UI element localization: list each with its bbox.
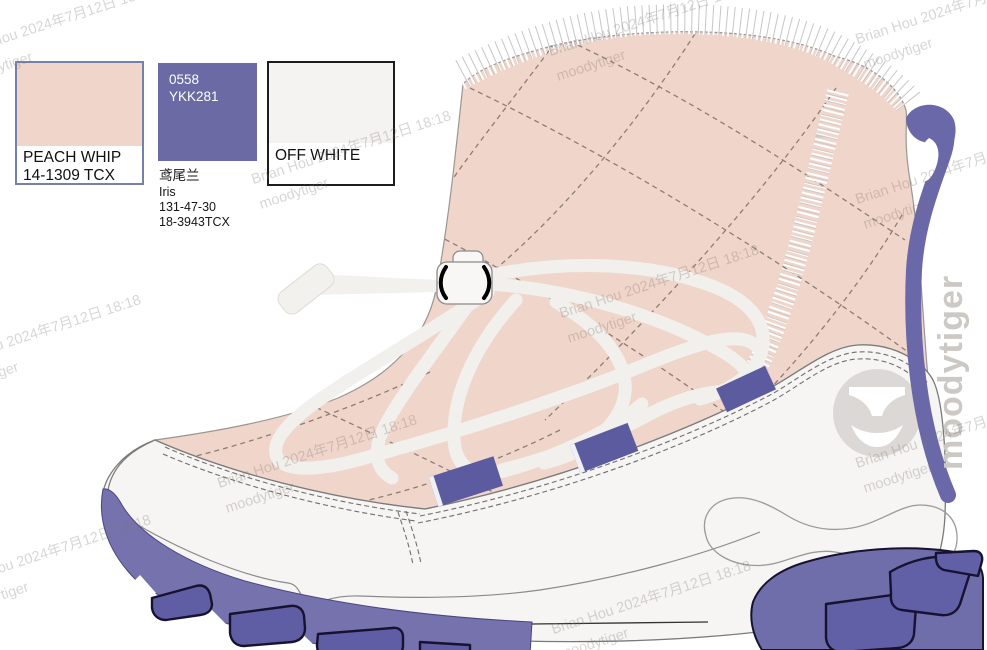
swatch-off-white-fill xyxy=(269,63,393,143)
lace-pull-handle xyxy=(274,260,438,317)
swatch-peach-fill xyxy=(17,63,142,146)
moodytiger-logo-icon xyxy=(833,369,921,457)
swatch-iris-en-name: Iris xyxy=(159,185,230,200)
swatch-peach-code: 14-1309 TCX xyxy=(23,167,136,185)
swatch-peach-name: PEACH WHIP xyxy=(23,149,136,167)
swatch-iris-info: 鸢尾兰 Iris 131-47-30 18-3943TCX xyxy=(159,168,230,230)
swatch-iris-code-a: 131-47-30 xyxy=(159,200,230,215)
swatch-off-white-name: OFF WHITE xyxy=(269,143,393,165)
design-sheet: PEACH WHIP 14-1309 TCX 0558 YKK281 鸢尾兰 I… xyxy=(0,0,987,650)
boot-illustration xyxy=(0,0,987,650)
swatch-iris-zip-code: YKK281 xyxy=(169,88,257,105)
swatch-iris-code-b: 18-3943TCX xyxy=(159,215,230,230)
swatch-iris-cn-name: 鸢尾兰 xyxy=(159,168,230,183)
swatch-off-white: OFF WHITE xyxy=(267,61,395,186)
swatch-iris: 0558 YKK281 xyxy=(158,63,257,161)
swatch-iris-zip-no: 0558 xyxy=(169,71,257,88)
swatch-peach-whip: PEACH WHIP 14-1309 TCX xyxy=(15,61,144,185)
